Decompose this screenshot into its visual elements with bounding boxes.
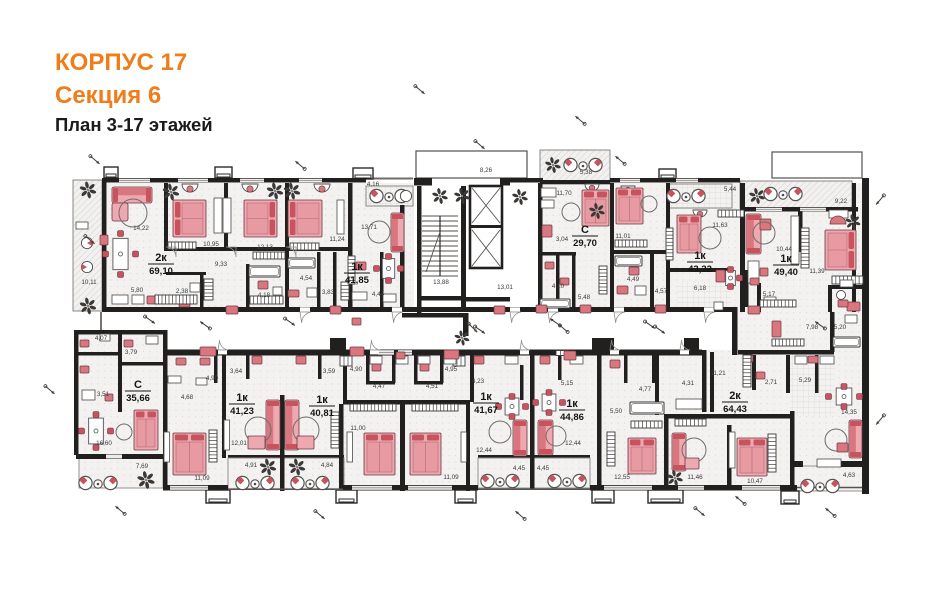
svg-text:13,01: 13,01 xyxy=(497,284,513,291)
svg-text:3,64: 3,64 xyxy=(230,368,243,375)
svg-text:5,15: 5,15 xyxy=(561,380,574,387)
svg-text:41,85: 41,85 xyxy=(345,275,369,286)
svg-text:5,38: 5,38 xyxy=(580,169,593,176)
svg-text:43,32: 43,32 xyxy=(688,264,712,275)
svg-text:С: С xyxy=(134,379,142,391)
svg-text:1к: 1к xyxy=(236,392,248,404)
svg-text:12,13: 12,13 xyxy=(257,244,273,251)
svg-text:4,47: 4,47 xyxy=(373,383,386,390)
svg-text:4,45: 4,45 xyxy=(513,465,526,472)
svg-text:11,46: 11,46 xyxy=(687,474,703,481)
svg-text:План 3-17 этажей: План 3-17 этажей xyxy=(55,114,213,135)
svg-text:9,22: 9,22 xyxy=(835,198,848,205)
svg-text:4,10: 4,10 xyxy=(552,283,565,290)
svg-text:29,70: 29,70 xyxy=(573,238,597,249)
svg-text:3,83: 3,83 xyxy=(322,289,335,296)
svg-text:11,01: 11,01 xyxy=(615,233,631,240)
svg-text:3,59: 3,59 xyxy=(323,368,336,375)
svg-text:2,38: 2,38 xyxy=(176,288,189,295)
svg-text:11,70: 11,70 xyxy=(556,190,572,197)
svg-text:12,44: 12,44 xyxy=(565,440,581,447)
svg-text:5,50: 5,50 xyxy=(610,408,623,415)
svg-text:12,55: 12,55 xyxy=(614,474,630,481)
svg-text:11,24: 11,24 xyxy=(329,236,345,243)
svg-text:8,26: 8,26 xyxy=(480,167,493,174)
svg-text:13,88: 13,88 xyxy=(433,279,449,286)
svg-text:10,11: 10,11 xyxy=(81,279,97,286)
svg-text:1к: 1к xyxy=(780,253,792,265)
svg-text:4,91: 4,91 xyxy=(245,462,258,469)
svg-text:3,51: 3,51 xyxy=(97,391,110,398)
svg-text:35,66: 35,66 xyxy=(126,393,150,404)
svg-text:49,40: 49,40 xyxy=(774,267,798,278)
svg-text:4,51: 4,51 xyxy=(426,383,439,390)
svg-text:КОРПУС 17: КОРПУС 17 xyxy=(55,49,187,76)
svg-text:6,18: 6,18 xyxy=(694,285,707,292)
svg-text:10,47: 10,47 xyxy=(747,478,763,485)
svg-text:69,10: 69,10 xyxy=(149,266,173,277)
svg-text:5,80: 5,80 xyxy=(131,287,144,294)
svg-text:С: С xyxy=(581,224,589,236)
svg-text:1к: 1к xyxy=(566,398,578,410)
svg-text:44,86: 44,86 xyxy=(560,412,584,423)
svg-text:5,48: 5,48 xyxy=(578,294,591,301)
svg-text:4,68: 4,68 xyxy=(181,394,194,401)
svg-text:4,16: 4,16 xyxy=(367,181,380,188)
svg-text:4,23: 4,23 xyxy=(472,378,485,385)
svg-text:11,09: 11,09 xyxy=(194,475,210,482)
svg-text:4,84: 4,84 xyxy=(321,462,334,469)
svg-text:10,44: 10,44 xyxy=(776,246,792,253)
svg-text:12,44: 12,44 xyxy=(476,447,492,454)
svg-text:4,63: 4,63 xyxy=(843,472,856,479)
svg-text:4,77: 4,77 xyxy=(639,386,652,393)
svg-text:Секция 6: Секция 6 xyxy=(55,82,161,109)
svg-text:5,17: 5,17 xyxy=(763,291,776,298)
svg-text:2к: 2к xyxy=(155,252,167,264)
svg-text:11,39: 11,39 xyxy=(809,268,825,275)
svg-text:4,31: 4,31 xyxy=(682,380,695,387)
svg-text:1к: 1к xyxy=(480,391,492,403)
svg-text:4,49: 4,49 xyxy=(627,276,640,283)
svg-text:14,35: 14,35 xyxy=(841,409,857,416)
svg-text:5,20: 5,20 xyxy=(834,324,847,331)
svg-text:40,81: 40,81 xyxy=(310,408,334,419)
svg-text:11,09: 11,09 xyxy=(443,474,459,481)
svg-text:2,71: 2,71 xyxy=(765,379,778,386)
svg-text:11,63: 11,63 xyxy=(712,222,728,229)
svg-text:41,23: 41,23 xyxy=(230,406,254,417)
svg-text:5,29: 5,29 xyxy=(799,377,812,384)
svg-text:1к: 1к xyxy=(694,250,706,262)
svg-text:11,00: 11,00 xyxy=(350,425,366,432)
svg-text:4,07: 4,07 xyxy=(95,335,108,342)
svg-text:16,60: 16,60 xyxy=(96,440,112,447)
svg-text:4,90: 4,90 xyxy=(350,366,363,373)
svg-text:4,57: 4,57 xyxy=(655,288,668,295)
svg-text:4,18: 4,18 xyxy=(258,292,271,299)
svg-text:5,44: 5,44 xyxy=(724,186,737,193)
svg-text:3,04: 3,04 xyxy=(556,236,569,243)
svg-text:4,45: 4,45 xyxy=(537,465,550,472)
svg-text:1к: 1к xyxy=(351,261,363,273)
svg-text:41,67: 41,67 xyxy=(474,405,498,416)
svg-text:64,43: 64,43 xyxy=(723,404,747,415)
svg-text:4,44: 4,44 xyxy=(372,291,385,298)
svg-text:12,01: 12,01 xyxy=(231,440,247,447)
svg-text:7,98: 7,98 xyxy=(806,324,819,331)
svg-text:2к: 2к xyxy=(729,390,741,402)
svg-text:7,69: 7,69 xyxy=(136,463,149,470)
svg-text:4,90: 4,90 xyxy=(206,375,219,382)
svg-text:1к: 1к xyxy=(316,394,328,406)
svg-text:13,71: 13,71 xyxy=(361,224,377,231)
svg-text:11,21: 11,21 xyxy=(710,370,726,377)
svg-text:9,33: 9,33 xyxy=(215,261,228,268)
svg-text:14,22: 14,22 xyxy=(133,225,149,232)
svg-text:10,95: 10,95 xyxy=(203,241,219,248)
svg-text:4,54: 4,54 xyxy=(300,275,313,282)
svg-text:3,79: 3,79 xyxy=(125,349,138,356)
svg-text:4,95: 4,95 xyxy=(445,366,458,373)
